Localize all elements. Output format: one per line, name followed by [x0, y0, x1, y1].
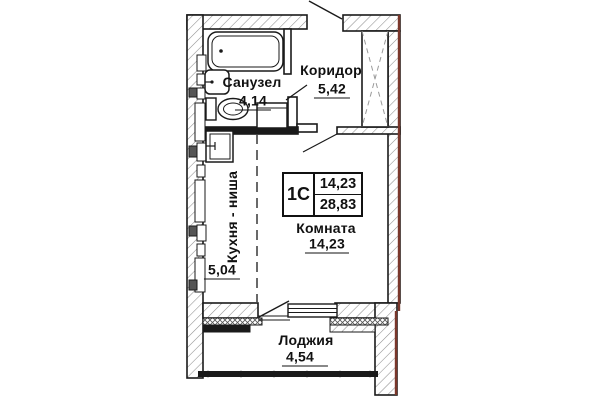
window: [288, 304, 337, 317]
entrance-door: [309, 1, 342, 19]
bathroom-area: 4,14: [235, 94, 271, 111]
kitchen-niche-area: 5,04: [204, 263, 240, 280]
unit-total-area: 28,83: [315, 195, 361, 215]
unit-type: 1С: [284, 174, 315, 215]
kitchen-sink-icon: [206, 131, 233, 162]
kitchen-niche-label: Кухня - ниша: [225, 171, 239, 263]
unit-living-area: 14,23: [315, 174, 361, 195]
corridor-area: 5,42: [314, 82, 350, 99]
window-sill-strips: [203, 318, 388, 332]
bathtub-icon: [208, 32, 283, 71]
room-label: Комната: [296, 221, 356, 235]
floor-plan-page: Санузел 4,14 Коридор 5,42 Кухня - ниша 5…: [0, 0, 600, 400]
ventilation-shaft: [362, 31, 388, 127]
loggia-area: 4,54: [282, 350, 328, 367]
bathroom-label: Санузел: [223, 75, 282, 89]
loggia-railing: [198, 371, 378, 377]
balcony-door: [258, 301, 290, 320]
corridor-label: Коридор: [300, 63, 362, 77]
unit-info-box: 1С 14,23 28,83: [282, 172, 363, 217]
room-area: 14,23: [305, 237, 349, 254]
room-opening-leader: [303, 134, 337, 152]
loggia-label: Лоджия: [279, 333, 334, 347]
